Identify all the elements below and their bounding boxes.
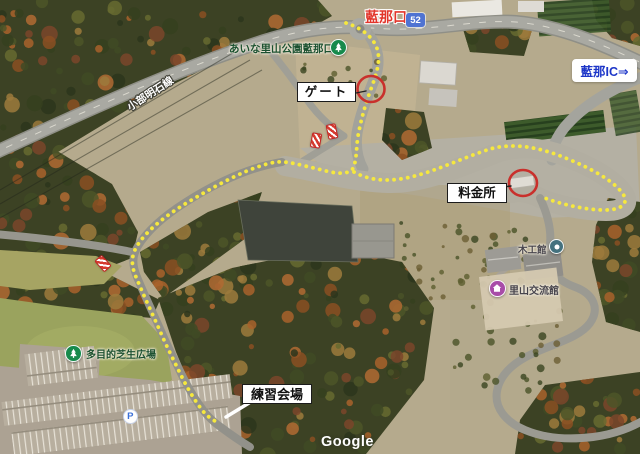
woodcraft-label: 木工館: [518, 242, 547, 256]
route-shield-badge: 52: [406, 13, 425, 27]
toll-highlight-circle: [509, 170, 537, 196]
map-canvas[interactable]: 藍那口 52 あいな里山公園藍那口 小部明石線 ゲート 藍那IC⇒ 料金所 木工…: [0, 0, 640, 454]
park-entrance-label: あいな里山公園藍那口: [229, 41, 334, 56]
gate-callout: ゲート: [297, 82, 356, 102]
practice-pointer-line: [226, 403, 249, 417]
dot-icon: [552, 242, 562, 252]
practice-venue-callout: 練習会場: [242, 384, 312, 404]
community-hall-marker[interactable]: [489, 280, 506, 297]
house-icon: [492, 283, 502, 293]
park-entrance-marker[interactable]: [330, 39, 347, 56]
community-hall-label: 里山交流館: [509, 282, 559, 297]
toll-callout: 料金所: [447, 183, 507, 203]
google-logo[interactable]: Google: [321, 434, 374, 450]
entrance-name-label: 藍那口: [365, 7, 407, 27]
tree-icon: [68, 348, 79, 359]
lawn-plaza-label: 多目的芝生広場: [86, 346, 156, 361]
route-overlay: [0, 0, 640, 454]
ic-direction-badge: 藍那IC⇒: [572, 59, 637, 82]
parking-badge[interactable]: P: [123, 409, 138, 424]
lawn-plaza-marker[interactable]: [65, 345, 82, 362]
tree-icon: [333, 42, 344, 53]
woodcraft-marker[interactable]: [549, 239, 564, 254]
